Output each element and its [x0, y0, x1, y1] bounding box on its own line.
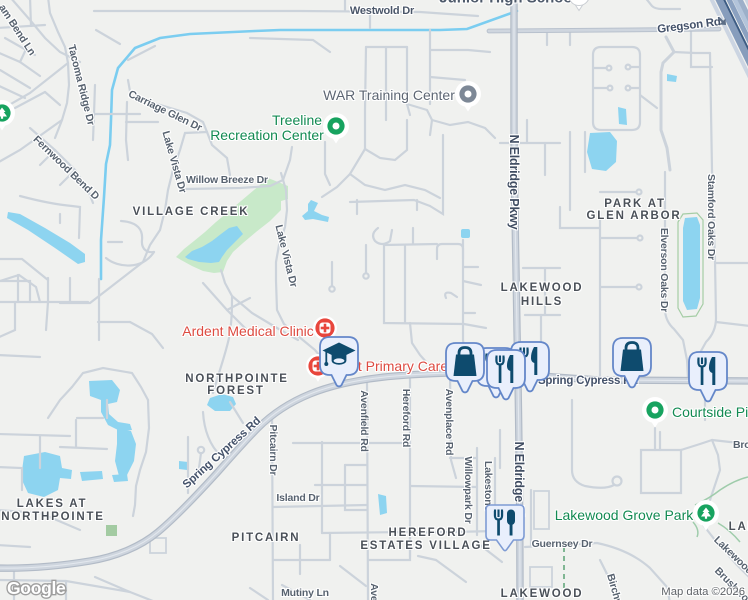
svg-text:Google: Google: [7, 578, 66, 598]
